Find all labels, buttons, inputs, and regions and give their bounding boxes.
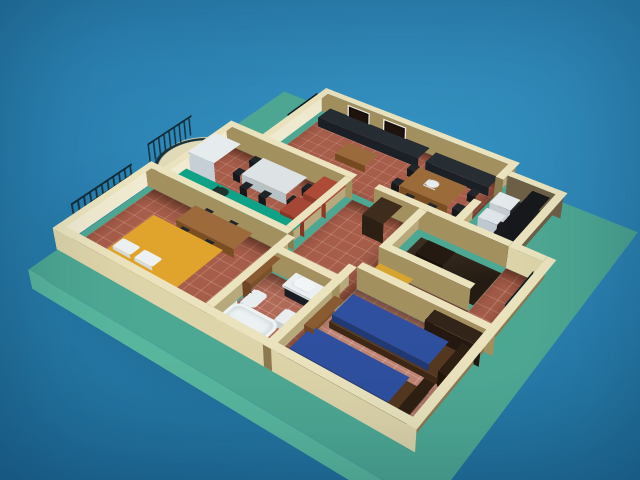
model-photo	[0, 0, 640, 480]
scene-3d	[0, 0, 640, 480]
apartment-model	[28, 91, 638, 480]
